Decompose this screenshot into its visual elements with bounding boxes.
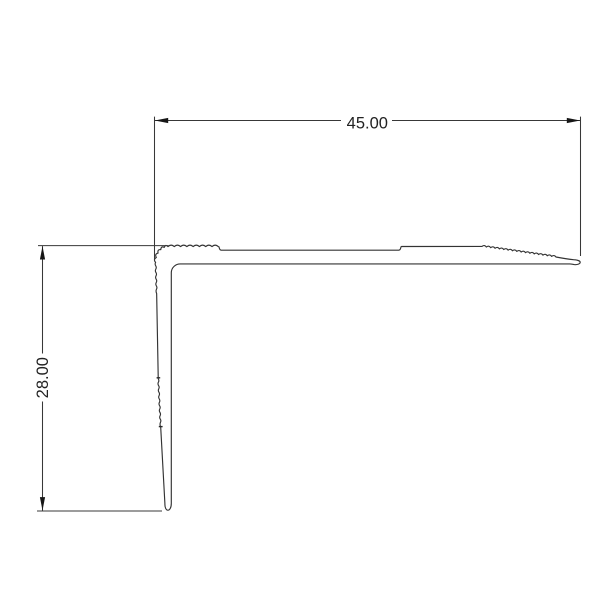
svg-text:45.00: 45.00: [347, 114, 388, 132]
svg-text:28.00: 28.00: [34, 357, 52, 398]
